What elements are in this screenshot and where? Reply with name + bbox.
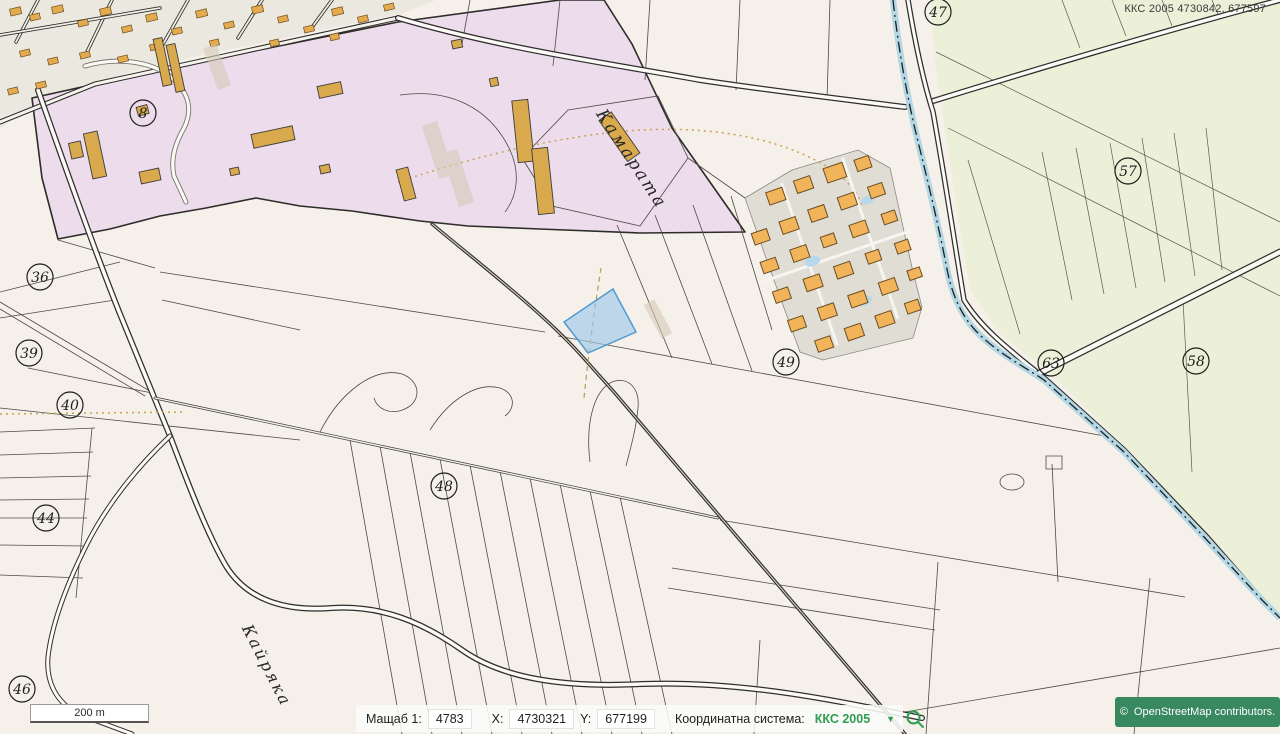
chevron-down-icon[interactable]: ▼ [886, 714, 895, 724]
crs-select[interactable]: ККС 2005 [815, 712, 870, 726]
svg-text:8: 8 [139, 106, 148, 122]
svg-text:63: 63 [1042, 356, 1060, 372]
x-coordinate-value: 4730321 [509, 709, 574, 729]
svg-text:47: 47 [928, 5, 947, 21]
scale-label: Мащаб 1: [366, 712, 422, 726]
svg-text:49: 49 [776, 355, 795, 371]
y-coordinate-label: Y: [580, 712, 591, 726]
svg-text:44: 44 [36, 511, 55, 527]
status-bar: Мащаб 1: 4783 X: 4730321 Y: 677199 Коорд… [356, 705, 903, 732]
copyright-icon: © [1120, 706, 1128, 718]
svg-text:58: 58 [1187, 354, 1205, 370]
svg-text:48: 48 [434, 479, 453, 495]
svg-text:46: 46 [12, 682, 31, 698]
crs-coords-readout: ККС 2005 4730842, 677597 [1124, 3, 1266, 15]
attribution-text: OpenStreetMap contributors. [1134, 706, 1275, 718]
crs-label: Координатна система: [675, 712, 805, 726]
svg-text:36: 36 [31, 270, 49, 286]
search-icon[interactable] [905, 709, 925, 729]
scale-bar: 200 m [30, 704, 149, 723]
scale-bar-label: 200 m [74, 707, 105, 719]
svg-text:40: 40 [60, 398, 79, 414]
x-coordinate-label: X: [492, 712, 504, 726]
osm-attribution[interactable]: © OpenStreetMap contributors. [1115, 697, 1280, 727]
svg-text:39: 39 [20, 346, 38, 362]
map-canvas[interactable]: 83639404446484947575863 КамаратаКайряка [0, 0, 1280, 734]
y-coordinate-value: 677199 [597, 709, 655, 729]
svg-text:57: 57 [1119, 164, 1137, 180]
scale-input[interactable]: 4783 [428, 709, 472, 729]
